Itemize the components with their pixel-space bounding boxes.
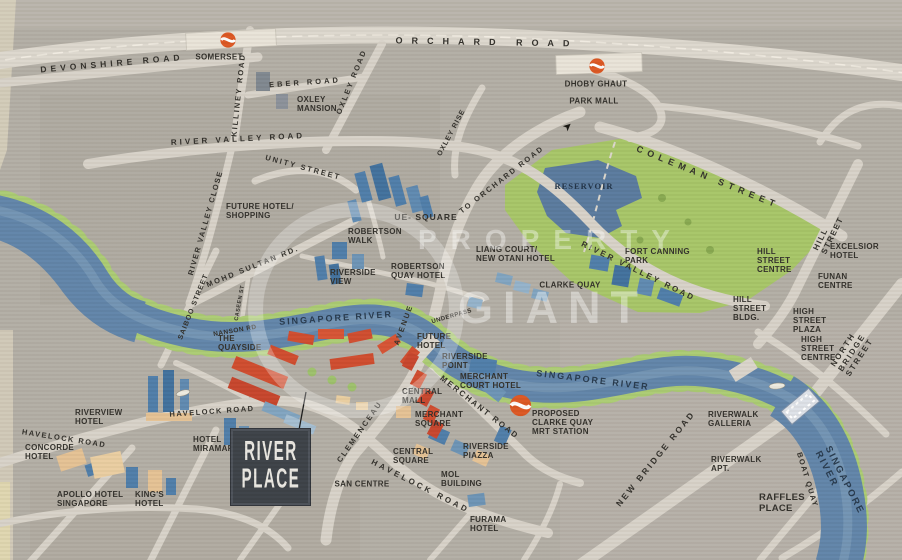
station-label-proposed-clarke-quay-mrt: PROPOSED CLARKE QUAY MRT STATION — [532, 410, 593, 437]
park-tree — [658, 194, 666, 202]
place-label-park-mall: PARK MALL — [569, 98, 618, 107]
place-label-san-centre: SAN CENTRE — [334, 481, 389, 490]
logo-line2: PLACE — [241, 465, 300, 494]
building — [126, 467, 138, 488]
building — [148, 376, 158, 412]
place-label-apollo-hotel: APOLLO HOTEL SINGAPORE — [57, 491, 123, 509]
place-label-robertson-walk: ROBERTSON WALK — [348, 228, 402, 246]
park-tree — [685, 219, 692, 226]
river-place-logo-text: RIVERPLACE — [241, 439, 300, 495]
river-place-logo: RIVERPLACE — [231, 429, 310, 505]
mrt-icon-somerset — [219, 31, 237, 54]
place-label-hotel-miramar: HOTEL MIRAMAR — [193, 436, 234, 454]
place-label-riverwalk-galleria: RIVERWALK GALLERIA — [708, 411, 759, 429]
building — [148, 470, 162, 492]
place-label-furama-hotel: FURAMA HOTEL — [470, 516, 506, 534]
place-label-future-hotel-shopping: FUTURE HOTEL/ SHOPPING — [226, 203, 294, 221]
building — [166, 478, 176, 495]
place-label-riverside-point: RIVERSIDE POINT — [442, 353, 488, 371]
place-label-excelsior-hotel: EXCELSIOR HOTEL — [830, 243, 879, 261]
river-place-location-map: ➤ ORCHARD ROAD DEVONSHIRE ROAD KILLINEY … — [0, 0, 902, 560]
building — [352, 254, 364, 269]
courtyard-green — [328, 376, 337, 385]
building — [276, 94, 288, 109]
place-label-riverside-view: RIVERSIDE VIEW — [330, 269, 376, 287]
mrt-icon-clarke-quay — [508, 393, 533, 423]
place-label-funan-centre: FUNAN CENTRE — [818, 273, 853, 291]
water-label-reservoir: RESERVOIR — [554, 182, 613, 192]
place-label-high-street-plaza: HIGH STREET PLAZA — [793, 308, 826, 335]
place-label-merchant-court-hotel: MERCHANT COURT HOTEL — [460, 373, 521, 391]
place-label-central-mall: CENTRAL MALL — [402, 388, 442, 406]
building — [405, 283, 424, 297]
river-place-block — [318, 329, 344, 339]
place-label-kings-hotel: KING'S HOTEL — [135, 491, 164, 509]
place-label-mol-building: MOL BUILDING — [441, 471, 482, 489]
station-label-dhoby-ghaut: DHOBY GHAUT — [565, 81, 628, 90]
place-label-merchant-square: MERCHANT SQUARE — [415, 411, 463, 429]
courtyard-green — [308, 368, 317, 377]
place-label-concorde-hotel: CONCORDE HOTEL — [25, 444, 74, 462]
place-label-central-square: CENTRAL SQUARE — [393, 448, 433, 466]
place-label-riverside-piazza: RIVERSIDE PIAZZA — [463, 443, 509, 461]
place-label-clarke-quay: CLARKE QUAY — [539, 282, 600, 291]
place-label-riverwalk-apt: RIVERWALK APT. — [711, 456, 762, 474]
building — [332, 242, 347, 259]
station-label-somerset: SOMERSET — [195, 54, 242, 63]
courtyard-green — [348, 383, 357, 392]
place-label-future-hotel: FUTURE HOTEL — [417, 333, 451, 351]
place-label-the-quayside: THE QUAYSIDE — [218, 335, 261, 353]
texture-block — [0, 0, 902, 28]
place-label-robertson-quay-hotel: ROBERTSON QUAY HOTEL — [391, 263, 446, 281]
place-label-hill-street-centre: HILL STREET CENTRE — [757, 248, 792, 275]
place-label-ue-square: UE- SQUARE — [394, 213, 457, 223]
place-label-raffles-place: RAFFLES PLACE — [759, 493, 805, 514]
logo-line1: RIVER — [244, 437, 298, 466]
mrt-logo — [219, 31, 237, 49]
mrt-logo — [508, 393, 533, 418]
park-tree — [706, 246, 714, 254]
river-place-lowrise — [356, 402, 368, 410]
building — [396, 406, 411, 418]
place-label-oxley-mansion: OXLEY MANSION — [297, 96, 337, 114]
place-label-riverview-hotel: RIVERVIEW HOTEL — [75, 409, 122, 427]
place-label-fort-canning-park: FORT CANNING PARK — [625, 248, 690, 266]
mrt-icon-dhoby-ghaut — [588, 57, 606, 80]
building — [163, 370, 174, 412]
place-label-liang-court-new-otani: LIANG COURT/ NEW OTANI HOTEL — [476, 246, 555, 264]
place-label-high-street-centre: HIGH STREET CENTRE — [801, 336, 836, 363]
park-tree — [637, 237, 644, 244]
place-label-hill-street-bldg: HILL STREET BLDG. — [733, 296, 766, 323]
building — [467, 493, 486, 507]
mrt-logo — [588, 57, 606, 75]
